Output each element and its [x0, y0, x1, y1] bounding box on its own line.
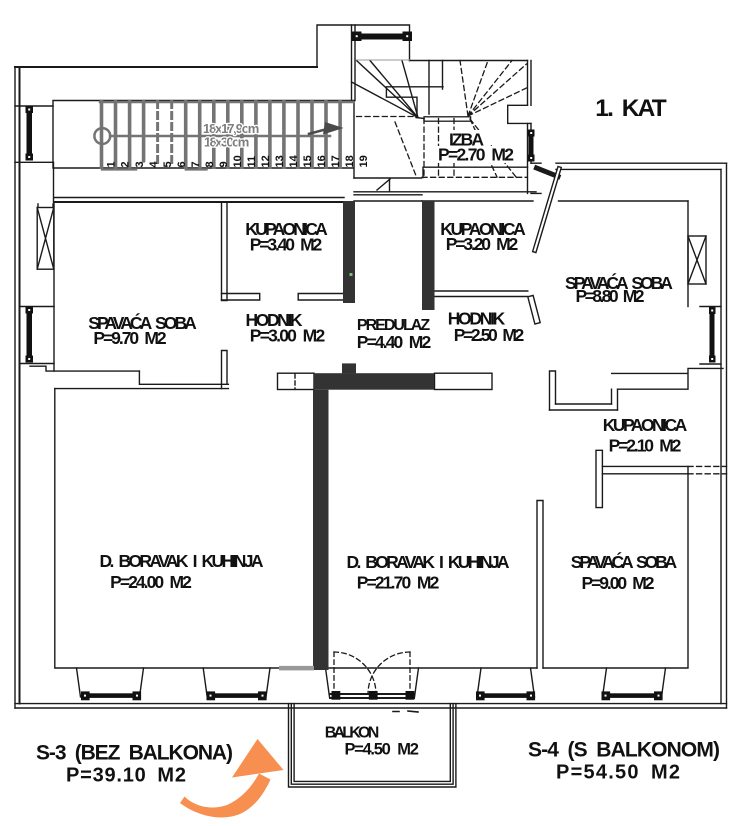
svg-text:P=2.50 M2: P=2.50 M2	[454, 325, 525, 345]
svg-text:10: 10	[232, 155, 244, 167]
svg-text:2: 2	[120, 161, 132, 167]
svg-text:P=2.10 M2: P=2.10 M2	[609, 436, 682, 456]
svg-text:SPAVAĆA SOBA: SPAVAĆA SOBA	[571, 551, 678, 572]
svg-text:4: 4	[148, 161, 160, 168]
svg-text:1: 1	[106, 161, 118, 167]
svg-text:P=21.70 M2: P=21.70 M2	[357, 573, 440, 593]
svg-text:P=4.50 M2: P=4.50 M2	[344, 741, 419, 759]
svg-text:D. BORAVAK I KUHINJA: D. BORAVAK I KUHINJA	[347, 552, 510, 572]
svg-text:5: 5	[162, 161, 174, 167]
svg-text:3: 3	[134, 161, 146, 167]
svg-text:1. KAT: 1. KAT	[595, 95, 667, 122]
svg-text:P=39.10 M2: P=39.10 M2	[66, 765, 186, 787]
svg-text:BALKON: BALKON	[325, 725, 380, 742]
svg-text:8: 8	[204, 161, 216, 167]
svg-text:KUPAONICA: KUPAONICA	[603, 415, 688, 435]
svg-text:16: 16	[316, 155, 328, 167]
svg-text:7: 7	[190, 161, 202, 167]
svg-text:6: 6	[176, 161, 188, 167]
svg-text:S-3 (BEZ BALKONA): S-3 (BEZ BALKONA)	[36, 742, 233, 765]
svg-text:D. BORAVAK I KUHINJA: D. BORAVAK I KUHINJA	[100, 551, 264, 571]
svg-text:14: 14	[288, 154, 300, 167]
svg-text:15: 15	[302, 155, 314, 167]
svg-text:11: 11	[246, 156, 258, 168]
svg-text:P=54.50 M2: P=54.50 M2	[556, 762, 680, 784]
svg-text:P=24.00 M2: P=24.00 M2	[110, 572, 192, 592]
svg-text:P=3.00 M2: P=3.00 M2	[250, 326, 326, 346]
svg-text:9: 9	[218, 161, 230, 167]
svg-text:P=9.00 M2: P=9.00 M2	[582, 573, 655, 593]
svg-text:P=4.40 M2: P=4.40 M2	[357, 332, 432, 352]
svg-text:17: 17	[330, 155, 342, 167]
svg-text:P=8.80 M2: P=8.80 M2	[576, 286, 645, 306]
svg-text:19: 19	[358, 155, 370, 167]
svg-text:S-4 (S BALKONOM): S-4 (S BALKONOM)	[528, 739, 720, 762]
svg-text:18: 18	[344, 155, 356, 167]
svg-text:12: 12	[260, 155, 272, 167]
svg-text:P=3.20 M2: P=3.20 M2	[446, 234, 519, 254]
svg-text:P=9.70 M2: P=9.70 M2	[93, 328, 167, 348]
svg-text:18x30cm: 18x30cm	[204, 135, 249, 150]
svg-text:P=3.40 M2: P=3.40 M2	[250, 235, 323, 255]
svg-text:13: 13	[274, 155, 286, 167]
svg-text:P=2.70 M2: P=2.70 M2	[438, 145, 514, 165]
